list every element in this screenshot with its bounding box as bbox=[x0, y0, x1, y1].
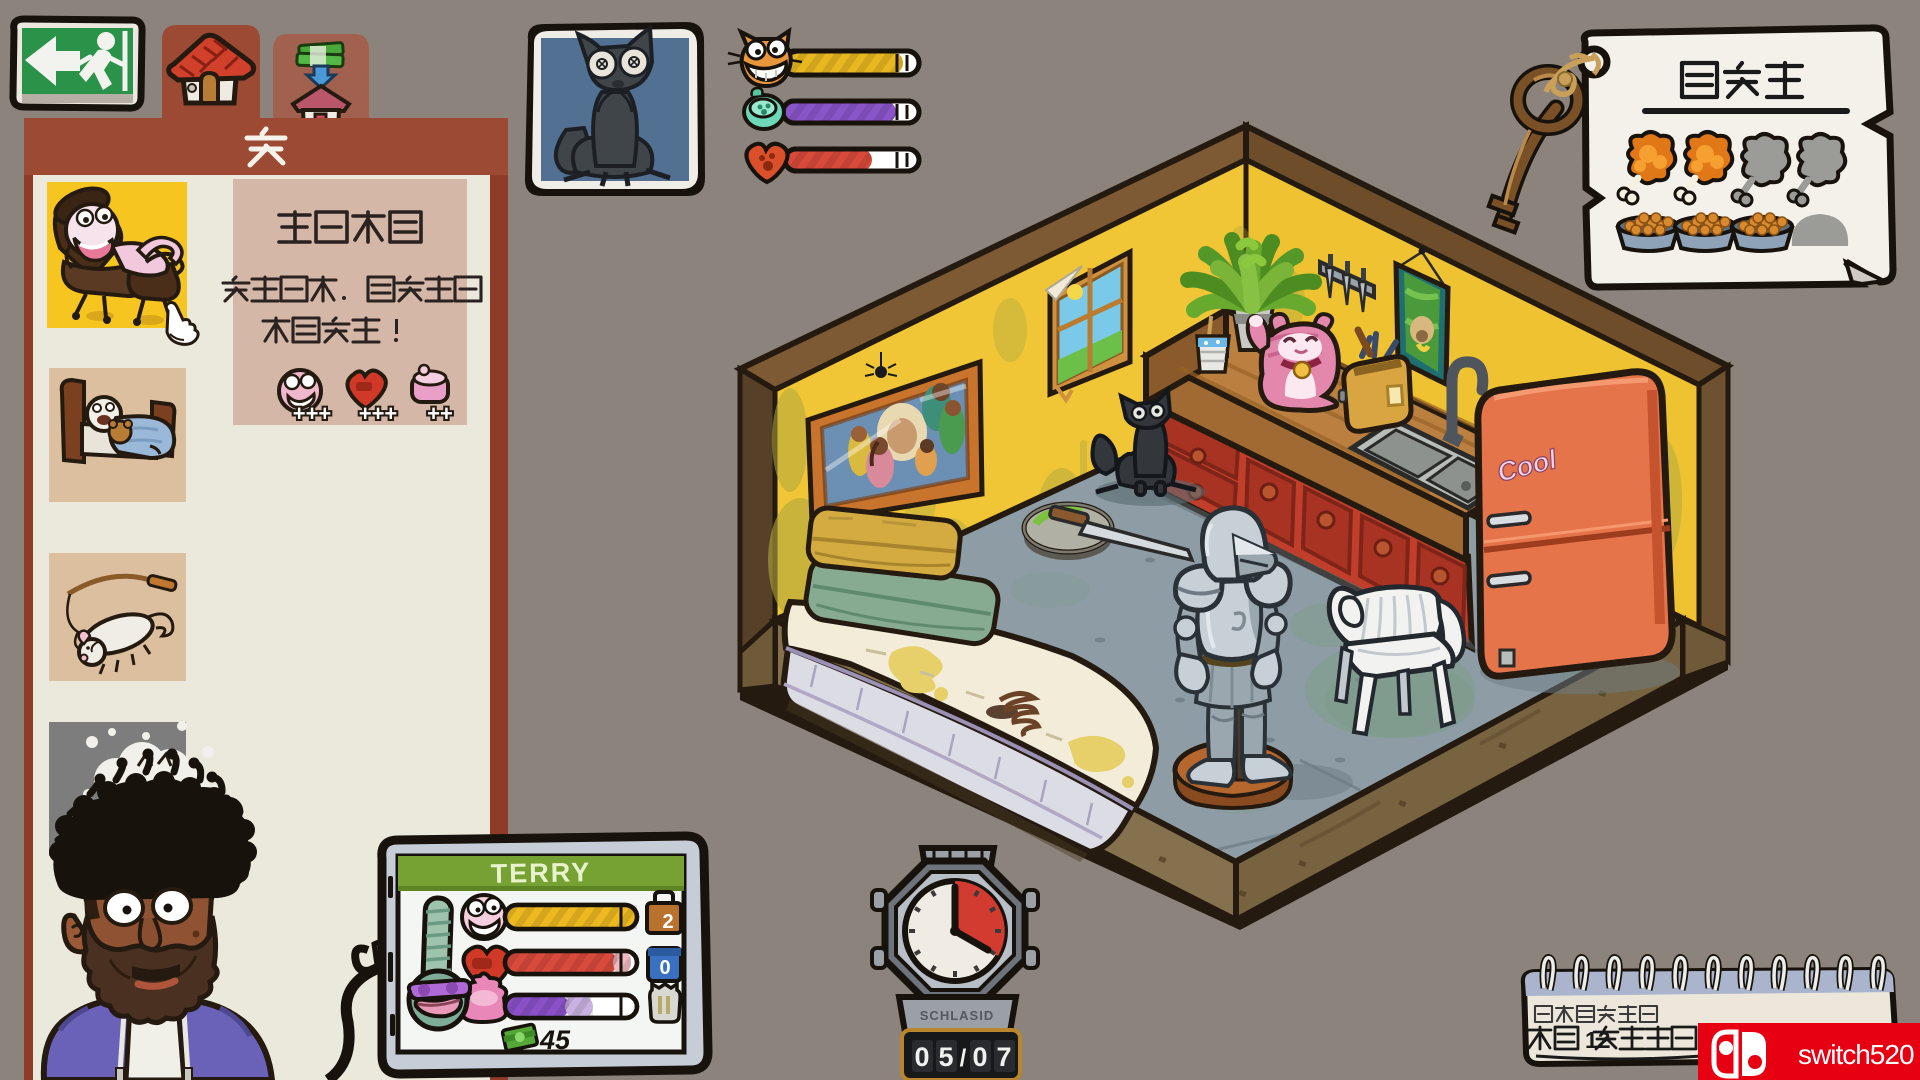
svg-text:SCHLASID: SCHLASID bbox=[920, 1008, 994, 1023]
svg-text:++: ++ bbox=[427, 401, 453, 426]
svg-text:switch520: switch520 bbox=[1798, 1039, 1914, 1070]
svg-text:5: 5 bbox=[938, 1042, 953, 1072]
svg-text:TERRY: TERRY bbox=[490, 857, 591, 889]
svg-text:7: 7 bbox=[996, 1042, 1011, 1072]
svg-text:2: 2 bbox=[662, 911, 673, 933]
svg-text:+++: +++ bbox=[359, 401, 398, 426]
svg-text:0: 0 bbox=[659, 957, 670, 979]
svg-text:+++: +++ bbox=[293, 401, 332, 426]
svg-text:45: 45 bbox=[539, 1025, 571, 1055]
svg-text:/: / bbox=[960, 1045, 967, 1072]
svg-text:0: 0 bbox=[914, 1042, 929, 1072]
svg-text:0: 0 bbox=[972, 1042, 987, 1072]
